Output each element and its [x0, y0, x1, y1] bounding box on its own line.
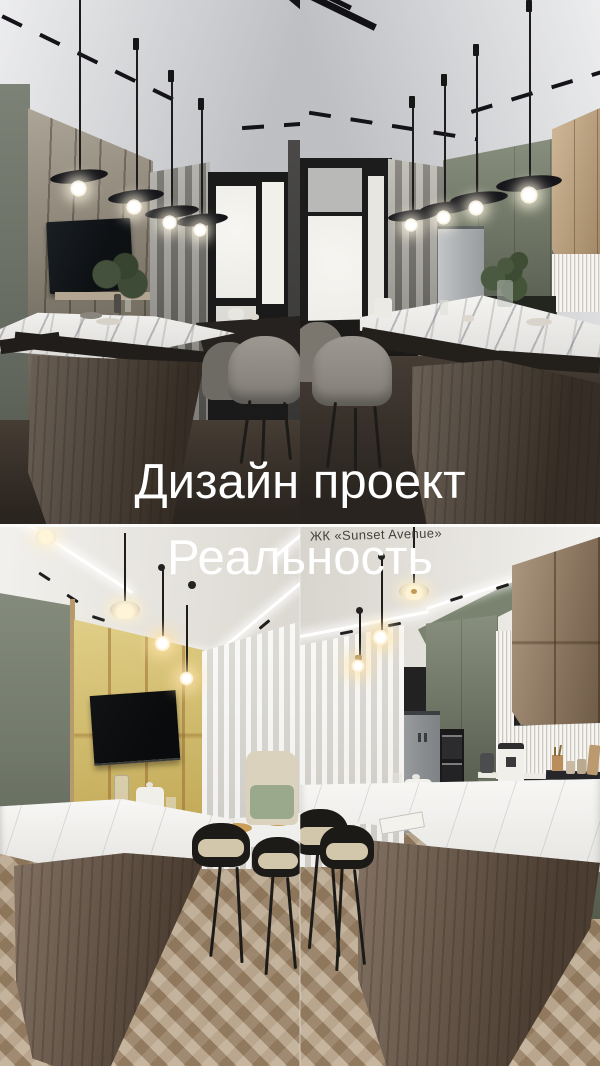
pendant-mount: [133, 38, 139, 50]
before-after-collage: Дизайн проект Реальность ЖК «Sunset Aven…: [0, 0, 600, 1066]
glass: [125, 299, 131, 312]
pendant-bulb: [154, 635, 171, 652]
pendant-cord: [476, 50, 478, 198]
sage-wall: [0, 583, 72, 835]
white-jar: [374, 298, 392, 318]
jar: [577, 759, 586, 774]
upper-cabinets-wood: [552, 108, 600, 260]
pendant-cord: [529, 2, 531, 180]
photo-real-kitchen: [300, 527, 600, 1066]
pendant-mount: [441, 74, 447, 86]
bottle: [114, 294, 121, 313]
pendant-cord: [79, 0, 81, 176]
pendant-mount: [526, 0, 532, 12]
dining-chair: [228, 336, 300, 404]
pendant-cord: [201, 104, 203, 220]
pendant-cord: [412, 102, 414, 216]
tile-backsplash: [496, 631, 514, 727]
title-reality: Реальность: [0, 534, 600, 583]
pendant-bulb: [372, 629, 389, 646]
pendant-cord: [359, 609, 361, 661]
chair-cushion: [198, 839, 244, 857]
window-pane: [262, 182, 284, 304]
candle: [463, 315, 474, 322]
cord-anchor: [356, 607, 363, 614]
fridge-handle: [424, 733, 427, 742]
cup: [250, 314, 259, 320]
bowl: [80, 312, 102, 319]
coffee-machine-detail: [506, 757, 516, 767]
glass: [440, 300, 448, 315]
utensil-crock: [552, 755, 563, 771]
glass-vase: [497, 280, 513, 307]
tile-backsplash: [552, 254, 600, 312]
pendant-bulb: [520, 186, 538, 204]
pendant-bulb: [70, 180, 87, 197]
tv: [90, 690, 181, 766]
fridge-handle: [418, 733, 421, 742]
title-design-project: Дизайн проект: [0, 458, 600, 507]
plate: [96, 318, 122, 325]
utensil: [554, 747, 556, 756]
collage-seam-vertical: [299, 527, 301, 1066]
teapot: [228, 308, 244, 320]
pendant-bulb: [351, 659, 365, 673]
roller-shade: [308, 168, 362, 212]
pendant-mount: [409, 96, 415, 108]
high-chair-blanket: [250, 785, 294, 819]
photo-render-kitchen: [300, 0, 600, 526]
pendant-cord: [186, 605, 188, 673]
pendant-bulb: [179, 671, 194, 686]
pendant-mount: [168, 70, 174, 82]
pendant-bulb: [468, 200, 484, 216]
pendant-bulb: [193, 223, 207, 237]
pendant-bulb: [436, 210, 451, 225]
pendant-cord: [444, 80, 446, 206]
photo-real-living: [0, 527, 300, 1066]
pendant-mount: [473, 44, 479, 56]
window-pane: [216, 186, 256, 298]
pendant-brass-detail: [411, 589, 417, 594]
pendant-cord: [136, 44, 138, 196]
chair-cushion: [258, 853, 298, 869]
pendant-bulb: [162, 215, 177, 230]
bowl: [526, 318, 552, 326]
pendant-bulb: [404, 218, 418, 232]
jar: [566, 761, 575, 774]
pendant-mount: [198, 98, 204, 110]
pendant-cord: [171, 76, 173, 212]
photo-render-living: [0, 0, 300, 526]
vase-greenery: [488, 250, 532, 282]
pendant-bulb: [126, 199, 142, 215]
microwave: [442, 735, 462, 759]
pendant-dome: [110, 601, 140, 619]
kettle: [480, 753, 494, 773]
dining-chair: [312, 336, 392, 406]
chair-cushion: [326, 843, 368, 860]
